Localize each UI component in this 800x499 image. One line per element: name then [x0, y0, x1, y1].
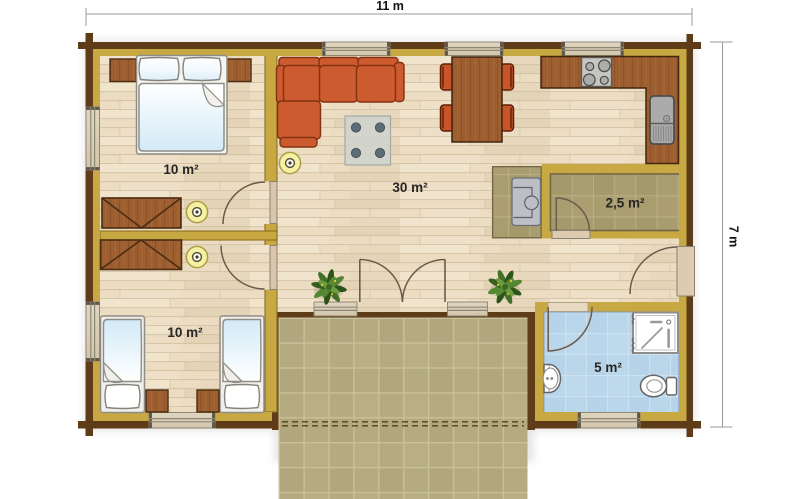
svg-text:7 m: 7 m — [727, 226, 741, 248]
svg-text:2,5 m²: 2,5 m² — [605, 196, 645, 211]
svg-text:10 m²: 10 m² — [167, 325, 203, 340]
svg-text:30 m²: 30 m² — [392, 180, 428, 195]
svg-text:11 m: 11 m — [376, 0, 404, 13]
svg-text:10 m²: 10 m² — [163, 162, 199, 177]
svg-text:5 m²: 5 m² — [594, 360, 622, 375]
